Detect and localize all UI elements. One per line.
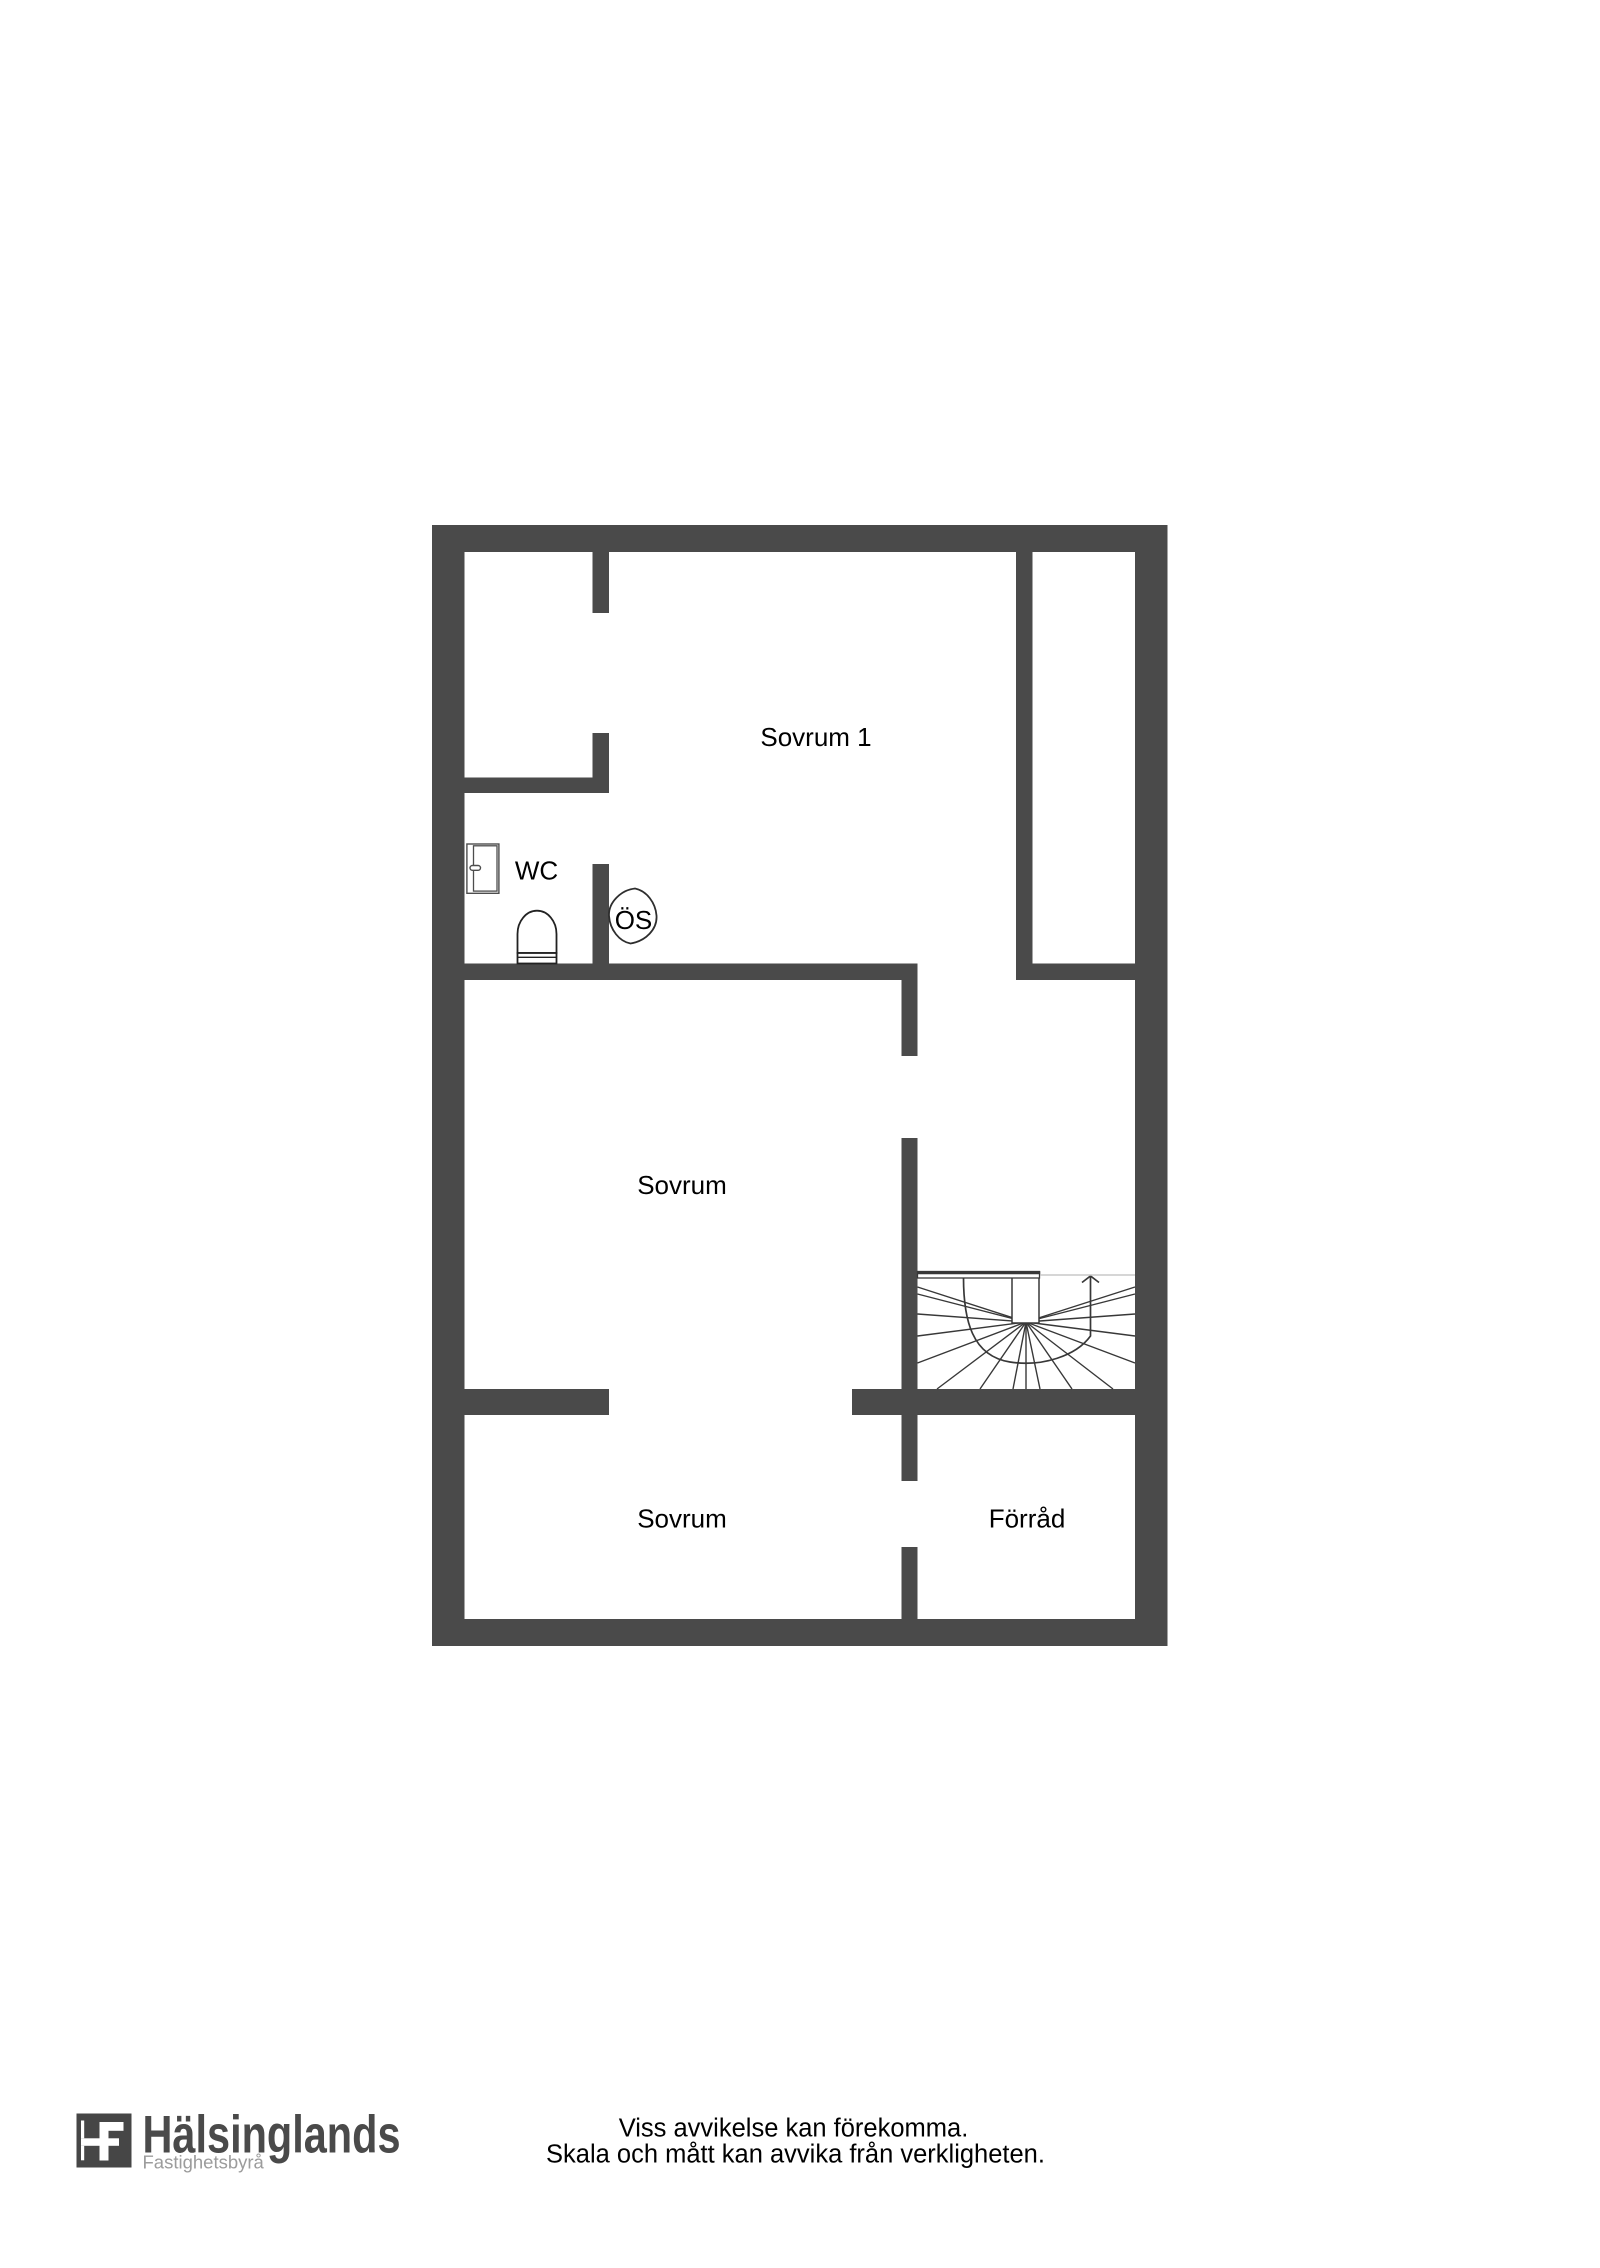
svg-text:Skala och mått kan avvika från: Skala och mått kan avvika från verklighe… — [546, 2141, 1045, 2169]
svg-text:Sovrum: Sovrum — [637, 1504, 727, 1534]
svg-text:Sovrum 1: Sovrum 1 — [760, 722, 871, 752]
svg-text:Fastighetsbyrå: Fastighetsbyrå — [143, 2152, 265, 2173]
svg-text:ÖS: ÖS — [615, 905, 653, 935]
svg-text:WC: WC — [515, 856, 558, 886]
svg-text:Sovrum: Sovrum — [637, 1170, 727, 1200]
svg-text:Viss avvikelse kan förekomma.: Viss avvikelse kan förekomma. — [619, 2115, 969, 2143]
svg-text:Förråd: Förråd — [989, 1504, 1066, 1534]
